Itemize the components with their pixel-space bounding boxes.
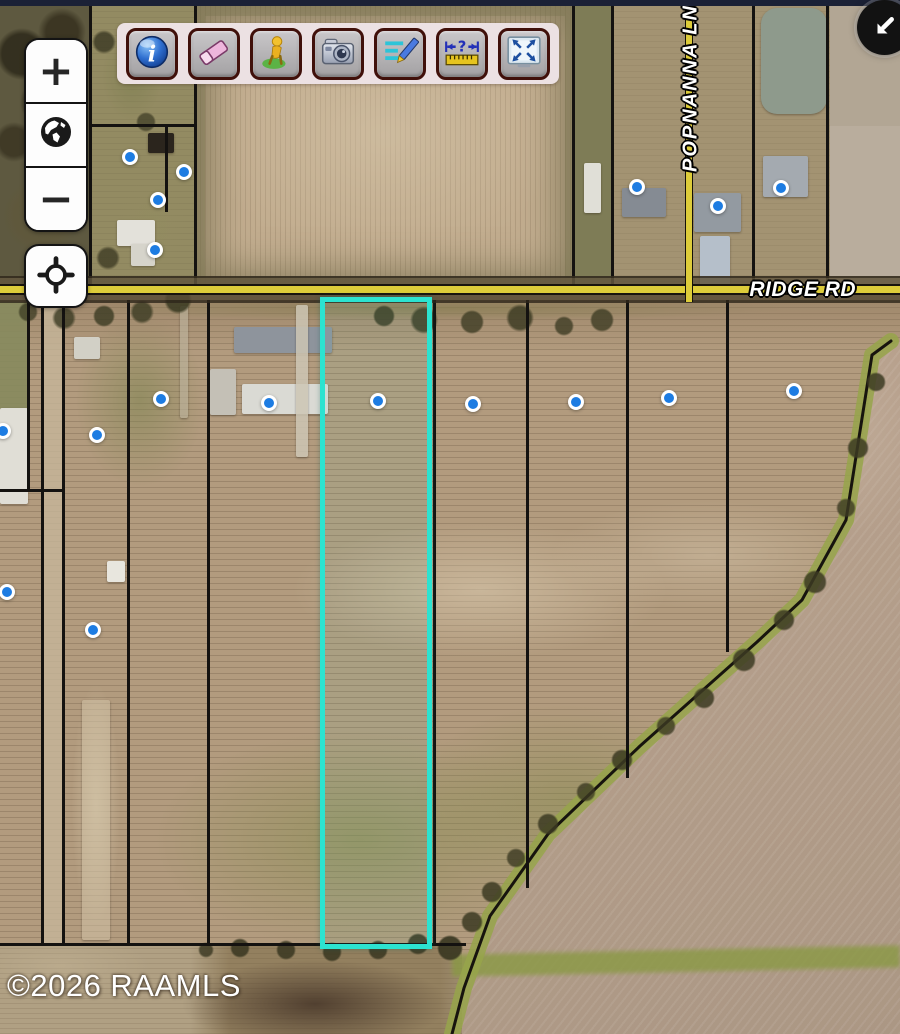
parcel-boundary-line	[90, 124, 195, 127]
parcel-marker[interactable]	[465, 396, 481, 412]
house	[622, 188, 666, 217]
zoom-control-panel: + −	[24, 38, 88, 232]
parcel-marker[interactable]	[370, 393, 386, 409]
shed	[210, 369, 236, 415]
parcel-boundary-line	[62, 300, 65, 944]
info-icon: i	[133, 33, 171, 74]
crosshair-icon	[37, 256, 75, 297]
parcel-marker[interactable]	[122, 149, 138, 165]
road-label-ridge-rd: RIDGE RD	[749, 278, 856, 302]
parcel-boundary-line	[826, 6, 829, 288]
parcel-marker[interactable]	[150, 192, 166, 208]
eraser-button[interactable]	[188, 28, 240, 80]
parcel-marker[interactable]	[85, 622, 101, 638]
screen-arrows-icon	[505, 33, 543, 74]
map-canvas[interactable]: RIDGE RD POPNANNA LN i	[0, 0, 900, 1034]
top-navy-bar	[0, 0, 900, 6]
house	[234, 327, 332, 353]
driveway	[296, 305, 308, 457]
driveway	[180, 306, 188, 418]
parcel-boundary-line	[433, 300, 436, 946]
parcel-boundary-line	[526, 300, 529, 888]
globe-button[interactable]	[26, 102, 86, 166]
parcel-marker[interactable]	[568, 394, 584, 410]
parcel-marker[interactable]	[773, 180, 789, 196]
parcel-boundary-line	[626, 300, 629, 778]
person-tool-button[interactable]	[250, 28, 302, 80]
parcel-boundary-line	[752, 6, 755, 288]
parcel-marker[interactable]	[147, 242, 163, 258]
zoom-out-button[interactable]: −	[26, 166, 86, 230]
house	[117, 220, 155, 246]
terrain-green-strip	[575, 6, 612, 288]
ruler-question-icon: ?	[443, 33, 481, 74]
parcel-boundary-line	[207, 300, 210, 944]
parcel-boundary-line	[41, 300, 44, 944]
locate-button[interactable]	[24, 244, 88, 308]
parcel-boundary-line	[611, 6, 614, 288]
person-icon	[257, 33, 295, 74]
pond	[761, 8, 827, 114]
parcel-marker[interactable]	[786, 383, 802, 399]
zoom-full-extent-button[interactable]	[498, 28, 550, 80]
road-label-popnanna-ln: POPNANNA LN	[680, 4, 703, 172]
photos-button[interactable]	[312, 28, 364, 80]
parcel-boundary-line	[726, 300, 729, 652]
road-ridge-rd: RIDGE RD	[0, 276, 900, 303]
measure-button[interactable]: ?	[436, 28, 488, 80]
zoom-in-button[interactable]: +	[26, 40, 86, 102]
parcel-marker[interactable]	[89, 427, 105, 443]
shed	[107, 561, 125, 582]
shed	[74, 337, 100, 359]
barn	[148, 133, 174, 153]
arrow-down-left-icon	[870, 11, 900, 44]
parcel-boundary-line	[127, 300, 130, 944]
shed	[584, 163, 601, 213]
parcel-marker[interactable]	[629, 179, 645, 195]
camera-icon	[319, 33, 357, 74]
copyright-text: ©2026 RAAMLS	[7, 968, 241, 1004]
parcel-boundary-line	[572, 6, 575, 288]
field-path	[82, 700, 110, 940]
notes-pencil-icon	[381, 33, 419, 74]
parcel-marker[interactable]	[153, 391, 169, 407]
parcel-marker[interactable]	[661, 390, 677, 406]
svg-text:?: ?	[458, 38, 467, 55]
parcel-marker[interactable]	[176, 164, 192, 180]
map-toolbar: i	[117, 23, 559, 84]
edit-notes-button[interactable]	[374, 28, 426, 80]
svg-text:i: i	[148, 42, 156, 68]
parcel-marker[interactable]	[710, 198, 726, 214]
identify-button[interactable]: i	[126, 28, 178, 80]
parcel-boundary-line	[27, 300, 30, 490]
parcel-boundary-line	[89, 6, 92, 288]
eraser-icon	[195, 33, 233, 74]
globe-icon	[38, 114, 74, 157]
parcel-marker[interactable]	[261, 395, 277, 411]
parcel-boundary-line	[0, 489, 63, 492]
house	[242, 384, 328, 414]
terrain-pale-strip	[44, 302, 62, 944]
